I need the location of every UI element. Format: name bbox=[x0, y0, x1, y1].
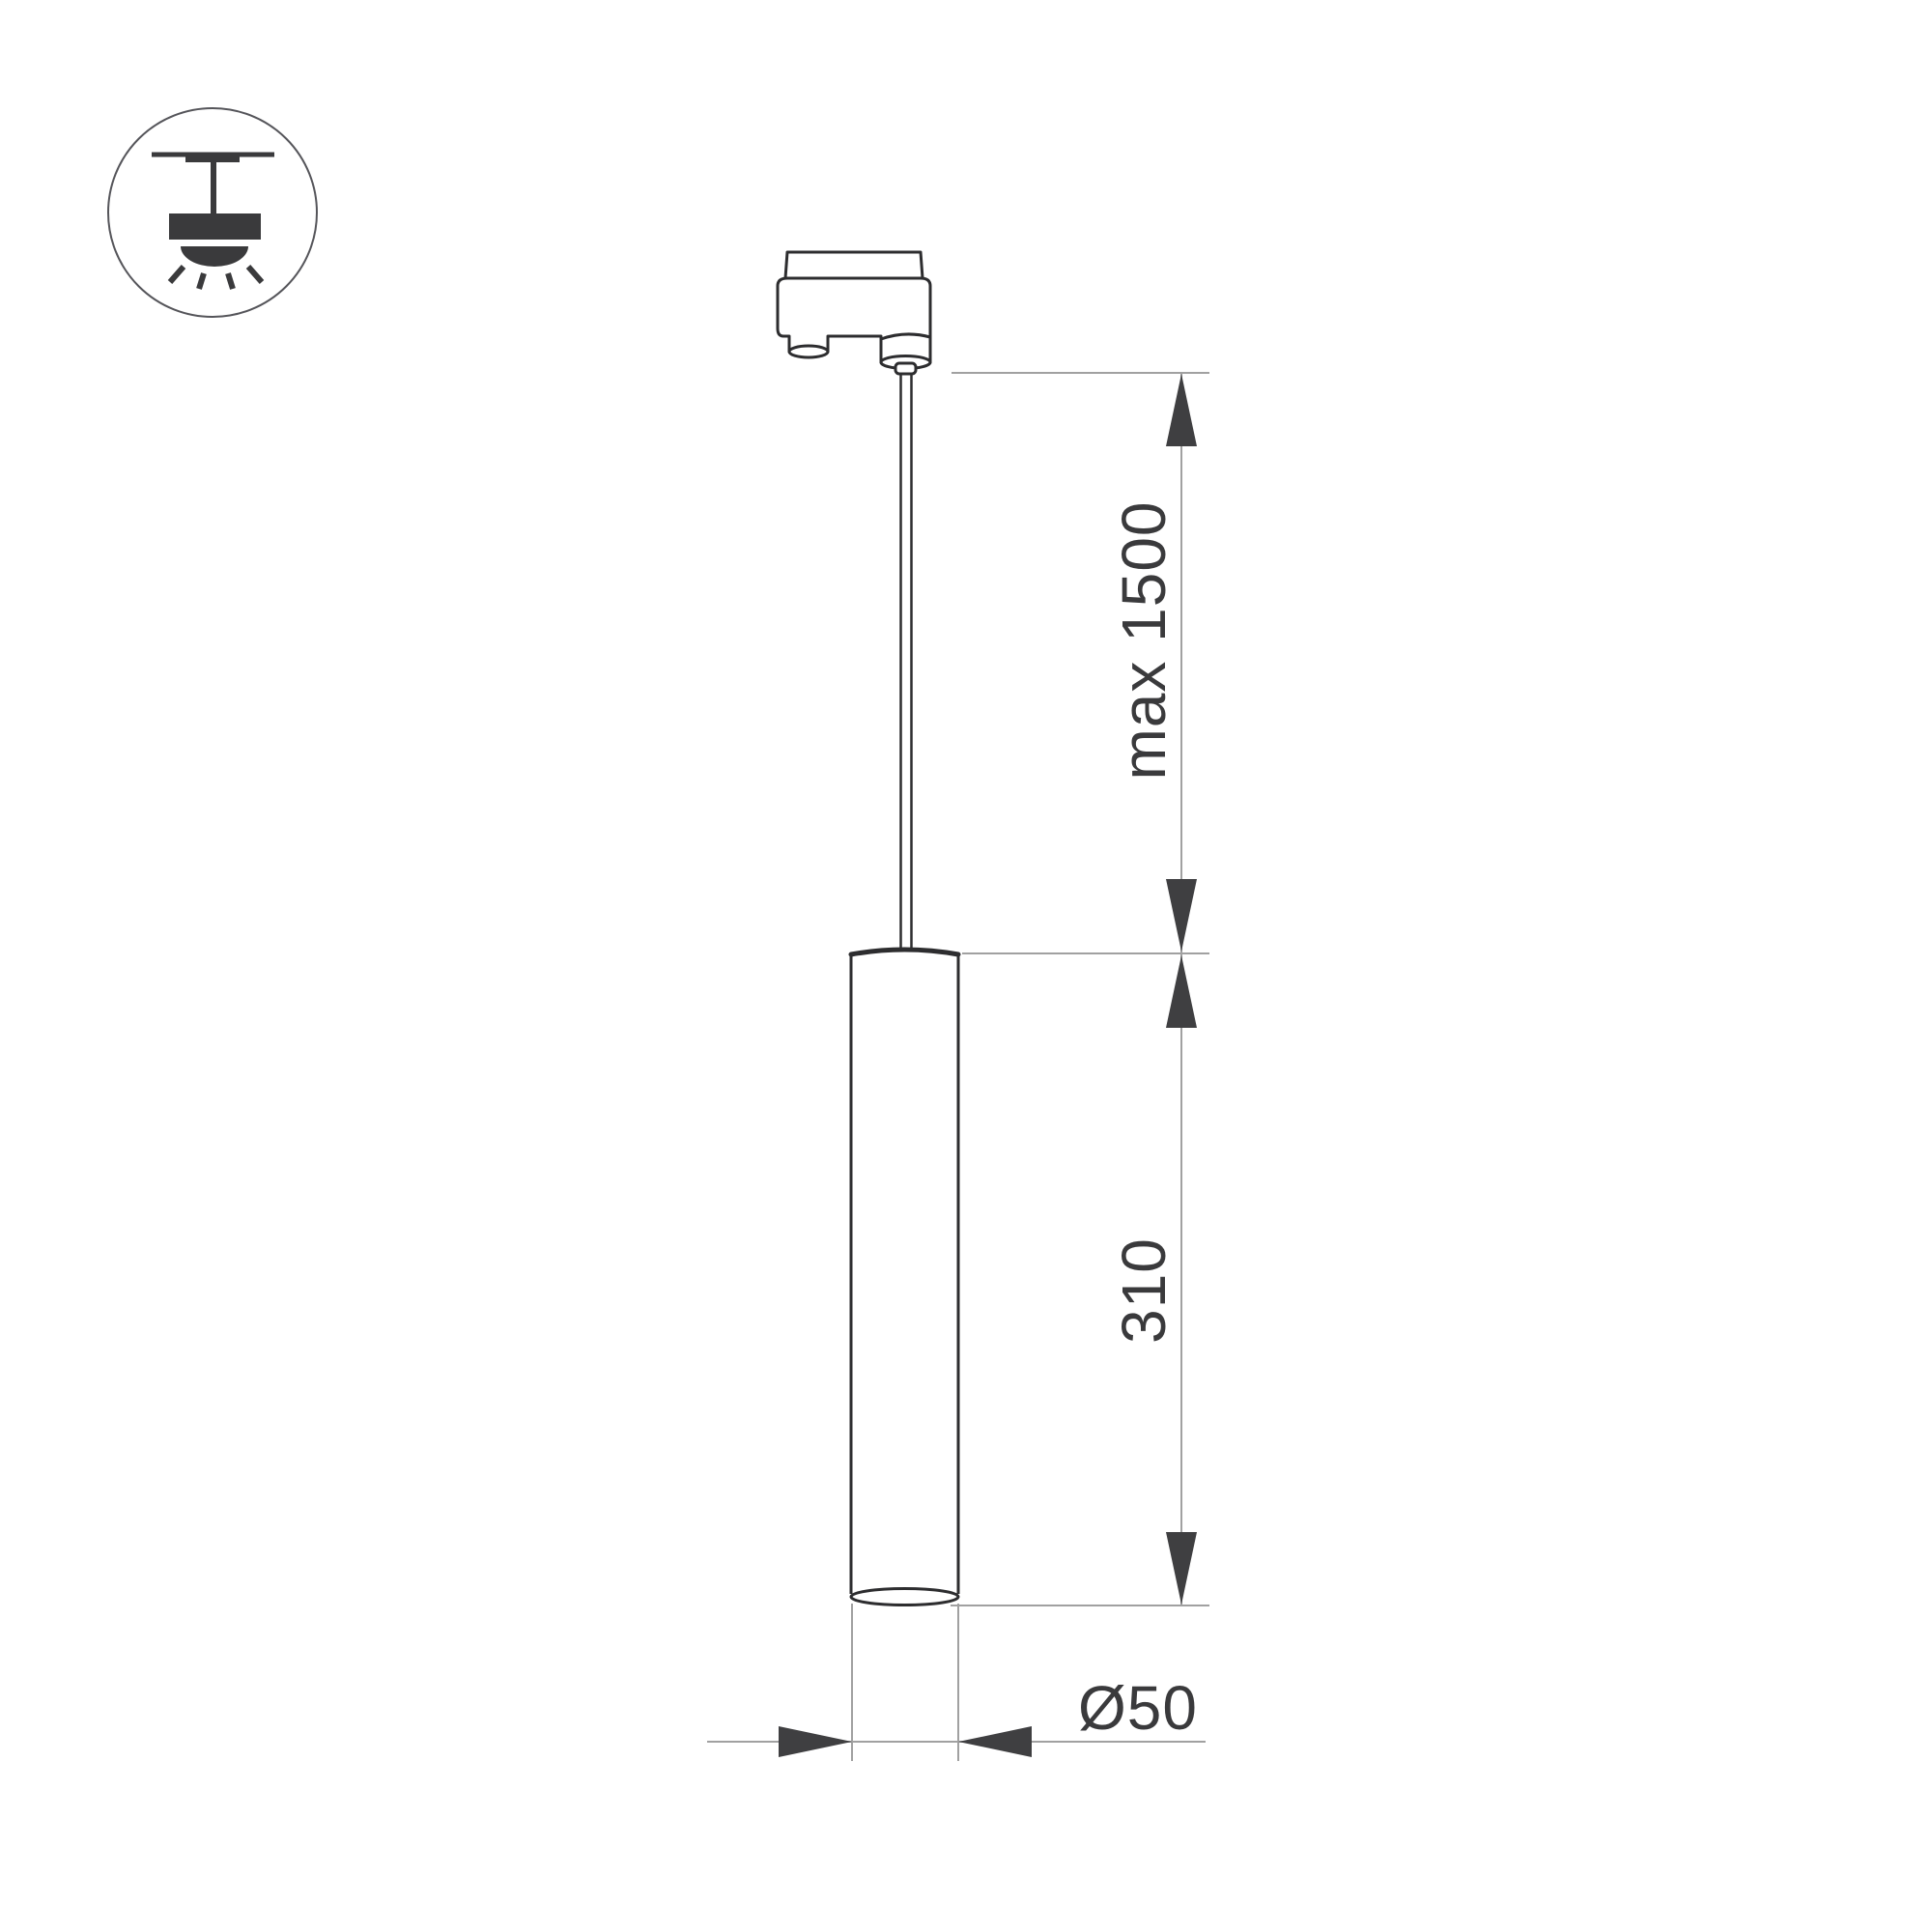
arrow-left-diameter-right bbox=[958, 1726, 1032, 1757]
diameter-label: Ø50 bbox=[1078, 1673, 1198, 1743]
track-adapter bbox=[778, 252, 930, 374]
track-connector-plate bbox=[785, 252, 923, 278]
arrow-right-diameter-left bbox=[779, 1726, 852, 1757]
wire-gland-nipple bbox=[895, 363, 916, 374]
lamp-tube bbox=[851, 950, 958, 1605]
dimension-drawing-canvas: max 1500 310 Ø50 bbox=[0, 0, 1932, 1932]
arrow-down-body-bottom bbox=[1166, 1532, 1197, 1605]
pendant-luminaire-dimension-drawing: max 1500 310 Ø50 bbox=[0, 0, 1932, 1932]
lamp-tube-body bbox=[851, 950, 958, 1594]
arrow-up-body-top bbox=[1166, 955, 1197, 1028]
body-length-label: 310 bbox=[1109, 1237, 1179, 1344]
ceiling-pendant-mount-icon bbox=[108, 108, 317, 317]
arrow-up-suspension-top bbox=[1166, 374, 1197, 446]
lamp-tube-bottom-lens bbox=[851, 1589, 958, 1605]
suspension-length-label: max 1500 bbox=[1109, 500, 1179, 780]
suspension-wire bbox=[901, 374, 912, 950]
arrow-down-suspension-bottom bbox=[1166, 879, 1197, 952]
icon-lamp-body bbox=[169, 213, 261, 240]
